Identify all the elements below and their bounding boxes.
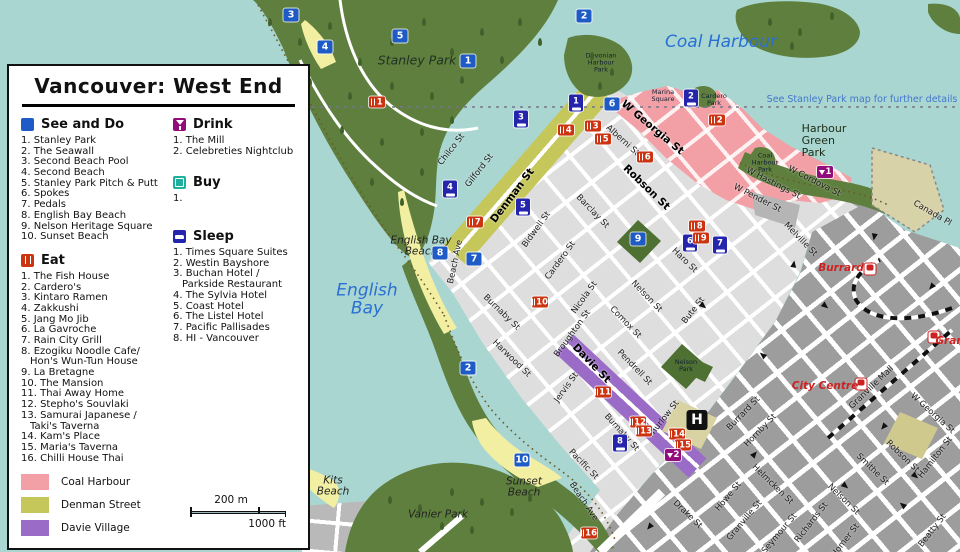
see-marker-4[interactable]: 4: [318, 41, 333, 54]
see-and-do-list: 1. Stanley Park2. The Seawall3. Second B…: [21, 136, 173, 243]
sleep-heading: Sleep: [193, 229, 234, 244]
buy-heading: Buy: [193, 175, 221, 190]
utensils-icon: [691, 223, 695, 230]
bed-icon: [687, 102, 696, 105]
eat-marker-7[interactable]: 7: [467, 217, 483, 228]
eat-marker-5[interactable]: 5: [595, 134, 611, 145]
sleep-marker-1[interactable]: 1: [569, 95, 583, 112]
eat-heading: Eat: [41, 253, 65, 268]
eat-icon: [21, 254, 34, 267]
legend-item-sleep-8: 8. HI - Vancouver: [173, 334, 308, 345]
drink-marker-1[interactable]: 1: [817, 166, 833, 178]
scale-imperial-label: 1000 ft: [190, 518, 286, 530]
legend-item-sleep-4: 4. The Sylvia Hotel: [173, 291, 308, 302]
sleep-icon: [173, 230, 186, 243]
skytrain-station-icon[interactable]: [864, 263, 877, 276]
utensils-icon: [675, 442, 678, 449]
station-label-city-centre: City Centre: [792, 380, 858, 392]
area-key-row: Coal Harbour: [21, 473, 308, 490]
utensils-icon: [532, 299, 535, 306]
station-label-burrard: Burrard: [818, 262, 864, 274]
see-marker-3[interactable]: 3: [284, 9, 299, 22]
area-swatch-label: Davie Village: [61, 522, 130, 534]
sleep-marker-7[interactable]: 7: [713, 237, 727, 254]
cocktail-icon: [819, 170, 825, 178]
bed-icon: [716, 249, 725, 252]
drink-marker-2[interactable]: 2: [665, 449, 681, 461]
buy-icon: [173, 176, 186, 189]
station-label-granville: Granville: [935, 335, 960, 347]
utensils-icon: [636, 428, 639, 435]
map-canvas: Coal HarbourEnglishBayStanley ParkEnglis…: [0, 0, 960, 552]
utensils-icon: [595, 389, 598, 396]
legend-item-eat-1: 1. The Fish House: [21, 272, 173, 283]
see-marker-10[interactable]: 10: [515, 454, 530, 467]
eat-marker-4[interactable]: 4: [558, 125, 574, 136]
legend-section-buy: Buy 1.: [173, 175, 308, 205]
title-rule: [22, 104, 295, 107]
eat-list: 1. The Fish House2. Cardero's3. Kintaro …: [21, 272, 173, 464]
bed-icon: [616, 447, 625, 450]
bed-icon: [519, 211, 528, 214]
cocktail-icon: [667, 453, 673, 461]
eat-marker-13[interactable]: 13: [636, 426, 652, 437]
eat-marker-2[interactable]: 2: [709, 115, 725, 126]
utensils-icon: [587, 123, 591, 130]
eat-marker-16[interactable]: 16: [581, 528, 597, 539]
buy-list: 1.: [173, 194, 308, 205]
utensils-icon: [695, 235, 699, 242]
map-title: Vancouver: West End: [15, 74, 302, 98]
sleep-marker-5[interactable]: 5: [516, 199, 530, 216]
sleep-marker-3[interactable]: 3: [514, 111, 528, 128]
bed-icon: [572, 107, 581, 110]
eat-marker-3[interactable]: 3: [585, 121, 601, 132]
sleep-marker-8[interactable]: 8: [613, 435, 627, 452]
eat-marker-11[interactable]: 11: [595, 387, 611, 398]
legend-item-see-8: 8. English Bay Beach: [21, 211, 173, 222]
utensils-icon: [711, 117, 715, 124]
legend-panel: Vancouver: West End See and Do 1. Stanle…: [7, 64, 310, 550]
see-marker-6[interactable]: 6: [605, 98, 620, 111]
legend-item-sleep-7: 7. Pacific Pallisades: [173, 323, 308, 334]
see-marker-9[interactable]: 9: [631, 233, 646, 246]
drink-list: 1. The Mill2. Celebreties Nightclub: [173, 136, 308, 157]
area-swatch: [21, 520, 49, 536]
scale-bar-line: [190, 507, 286, 517]
scale-metric-label: 200 m: [190, 494, 286, 506]
see-marker-5[interactable]: 5: [393, 30, 408, 43]
see-marker-8[interactable]: 8: [433, 247, 448, 260]
legend-item-see-10: 10. Sunset Beach: [21, 232, 173, 243]
drink-icon: [173, 118, 186, 131]
legend-item-sleep-3: 3. Buchan Hotel /Parkside Restaurant: [173, 269, 308, 290]
bed-icon: [517, 123, 526, 126]
utensils-icon: [371, 99, 375, 106]
utensils-icon: [597, 136, 601, 143]
eat-marker-9[interactable]: 9: [693, 233, 709, 244]
eat-marker-1[interactable]: 1: [369, 97, 385, 108]
see-marker-2[interactable]: 2: [577, 10, 592, 23]
legend-item-eat-15: 15. Maria's Taverna: [21, 443, 173, 454]
legend-item-drink-2: 2. Celebreties Nightclub: [173, 147, 308, 158]
legend-section-eat: Eat 1. The Fish House2. Cardero's3. Kint…: [21, 253, 173, 464]
see-marker-1[interactable]: 1: [461, 55, 476, 68]
drink-heading: Drink: [193, 117, 233, 132]
see-marker-7[interactable]: 7: [467, 253, 482, 266]
utensils-icon: [560, 127, 564, 134]
eat-marker-6[interactable]: 6: [637, 152, 653, 163]
scale-bar: 200 m 1000 ft: [190, 494, 286, 530]
sleep-list: 1. Times Square Suites2. Westin Bayshore…: [173, 248, 308, 344]
sleep-marker-4[interactable]: 4: [443, 181, 457, 198]
area-swatch: [21, 474, 49, 490]
eat-marker-10[interactable]: 10: [532, 297, 548, 308]
area-swatch-label: Denman Street: [61, 499, 141, 511]
utensils-icon: [669, 431, 672, 438]
legend-item-eat-8: 8. Ezogiku Noodle Cafe/Hon's Wun-Tun Hou…: [21, 347, 173, 368]
utensils-icon: [581, 530, 584, 537]
area-swatch: [21, 497, 49, 513]
legend-item-buy-1: 1.: [173, 194, 308, 205]
eat-marker-14[interactable]: 14: [669, 429, 685, 440]
utensils-icon: [630, 419, 633, 426]
area-swatch-label: Coal Harbour: [61, 476, 130, 488]
utensils-icon: [469, 219, 473, 226]
eat-marker-8[interactable]: 8: [689, 221, 705, 232]
legend-item-eat-13: 13. Samurai Japanese /Taki's Taverna: [21, 411, 173, 432]
legend-section-drink: Drink 1. The Mill2. Celebreties Nightclu…: [173, 117, 308, 157]
legend-section-see: See and Do 1. Stanley Park2. The Seawall…: [21, 117, 173, 243]
bed-icon: [446, 193, 455, 196]
see-marker-2[interactable]: 2: [461, 362, 476, 375]
see-and-do-icon: [21, 118, 34, 131]
utensils-icon: [639, 154, 643, 161]
bed-icon: [686, 247, 695, 250]
legend-item-eat-16: 16. Chilli House Thai: [21, 454, 173, 465]
hospital-marker[interactable]: H: [687, 410, 708, 430]
see-and-do-heading: See and Do: [41, 117, 124, 132]
legend-section-sleep: Sleep 1. Times Square Suites2. Westin Ba…: [173, 229, 308, 344]
sleep-marker-2[interactable]: 2: [684, 90, 698, 107]
